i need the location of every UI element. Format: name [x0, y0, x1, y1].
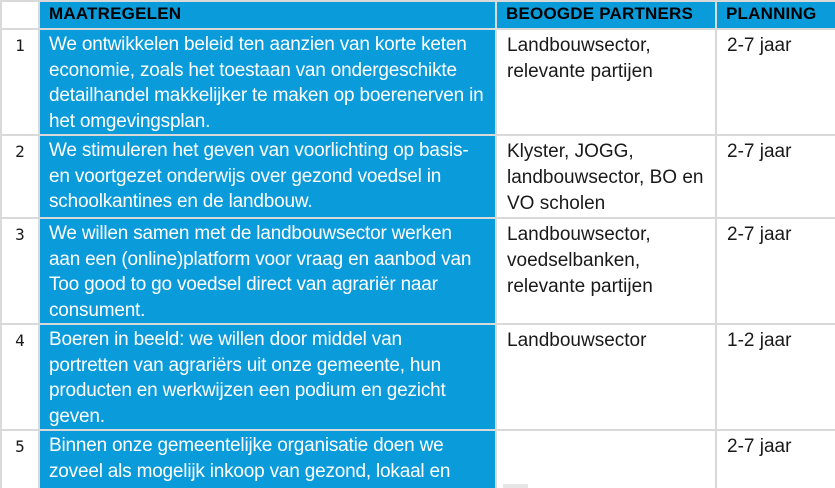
measures-table: MAATREGELEN BEOOGDE PARTNERS PLANNING 1 …	[0, 0, 835, 488]
measure-cell: Boeren in beeld: we willen door middel v…	[39, 324, 496, 430]
planning-cell: 1-2 jaar	[716, 324, 835, 430]
header-planning: PLANNING	[716, 1, 835, 29]
partners-cell	[496, 430, 716, 488]
planning-cell: 2-7 jaar	[716, 29, 835, 135]
table-row: 5 Binnen onze gemeentelijke organisatie …	[1, 430, 835, 488]
header-maatregelen: MAATREGELEN	[39, 1, 496, 29]
measure-cell: We stimuleren het geven van voorlichting…	[39, 135, 496, 218]
table-header-row: MAATREGELEN BEOOGDE PARTNERS PLANNING	[1, 1, 835, 29]
table-row: 1 We ontwikkelen beleid ten aanzien van …	[1, 29, 835, 135]
planning-cell: 2-7 jaar	[716, 430, 835, 488]
row-number: 5	[1, 430, 39, 488]
header-number-cell	[1, 1, 39, 29]
row-number: 2	[1, 135, 39, 218]
document-page: MAATREGELEN BEOOGDE PARTNERS PLANNING 1 …	[0, 0, 835, 488]
row-number: 3	[1, 218, 39, 324]
row-number: 4	[1, 324, 39, 430]
header-partners: BEOOGDE PARTNERS	[496, 1, 716, 29]
partners-cell: Landbouwsector	[496, 324, 716, 430]
measure-cell: We ontwikkelen beleid ten aanzien van ko…	[39, 29, 496, 135]
planning-cell: 2-7 jaar	[716, 218, 835, 324]
table-row: 3 We willen samen met de landbouwsector …	[1, 218, 835, 324]
bottom-edge-artifact	[503, 484, 528, 488]
planning-cell: 2-7 jaar	[716, 135, 835, 218]
table-row: 2 We stimuleren het geven van voorlichti…	[1, 135, 835, 218]
row-number: 1	[1, 29, 39, 135]
partners-cell: Klyster, JOGG, landbouwsector, BO en VO …	[496, 135, 716, 218]
partners-cell: Landbouwsector, relevante partijen	[496, 29, 716, 135]
table-row: 4 Boeren in beeld: we willen door middel…	[1, 324, 835, 430]
partners-cell: Landbouwsector, voedselbanken, relevante…	[496, 218, 716, 324]
measure-cell: Binnen onze gemeentelijke organisatie do…	[39, 430, 496, 488]
measure-cell: We willen samen met de landbouwsector we…	[39, 218, 496, 324]
